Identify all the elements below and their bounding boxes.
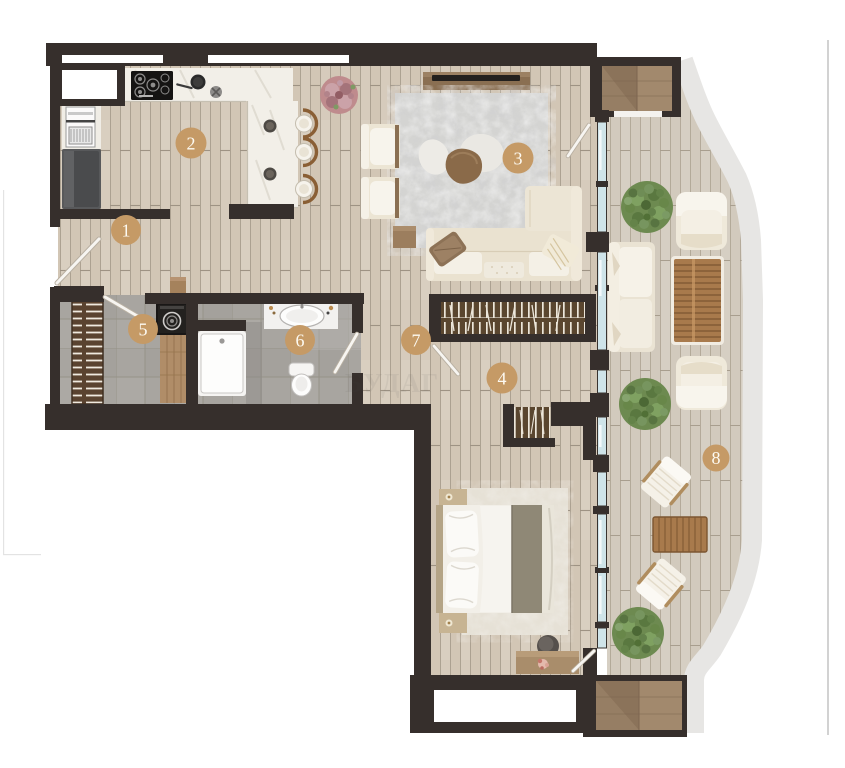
svg-text:6: 6 — [296, 331, 305, 351]
svg-text:БУДАГ: БУДАГ — [345, 368, 439, 398]
svg-text:5: 5 — [139, 320, 148, 340]
svg-text:3: 3 — [514, 149, 523, 169]
svg-text:7: 7 — [412, 331, 421, 351]
svg-text:2: 2 — [187, 134, 196, 154]
svg-text:8: 8 — [712, 448, 721, 468]
svg-text:1: 1 — [122, 221, 131, 241]
svg-text:4: 4 — [498, 369, 507, 389]
